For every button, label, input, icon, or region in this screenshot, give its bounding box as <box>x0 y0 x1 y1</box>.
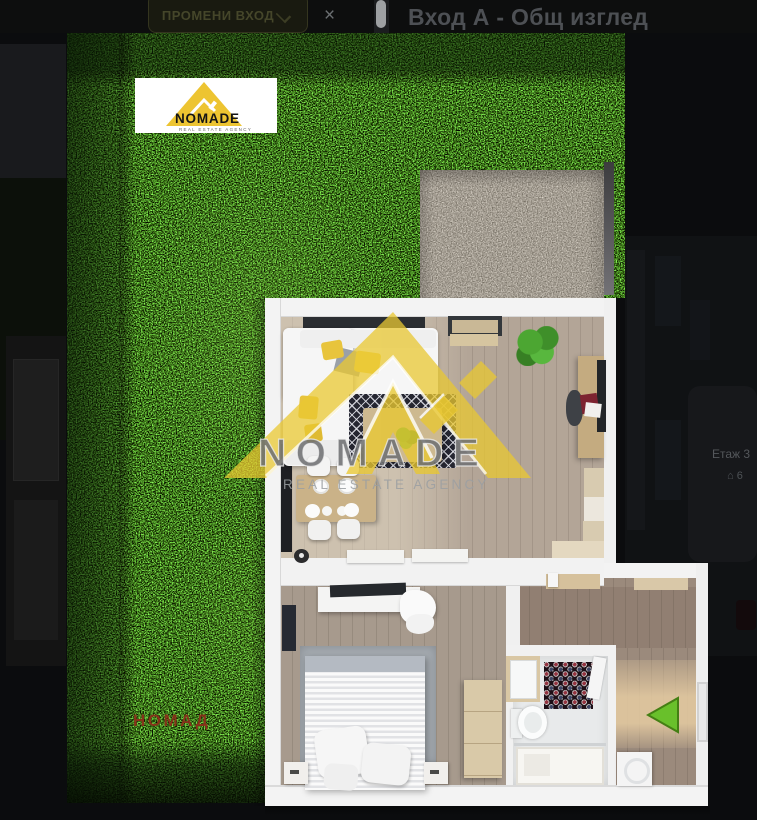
svg-text:REAL ESTATE AGENCY: REAL ESTATE AGENCY <box>179 127 252 132</box>
svg-text:NOMADE: NOMADE <box>258 432 488 475</box>
svg-text:NOMADE: NOMADE <box>175 111 240 126</box>
svg-text:REAL ESTATE AGENCY: REAL ESTATE AGENCY <box>283 477 490 492</box>
